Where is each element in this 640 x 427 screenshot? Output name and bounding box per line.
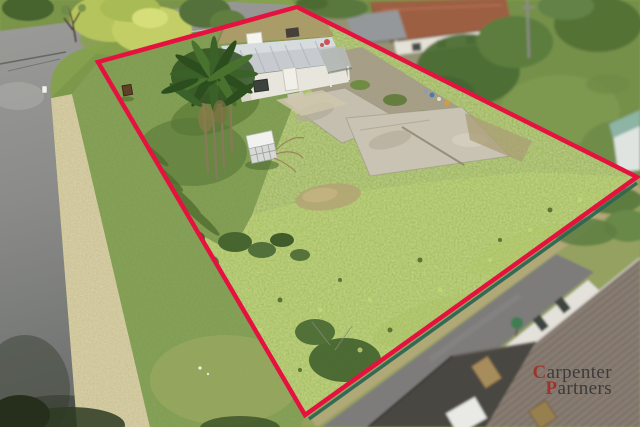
aerial-photo: Carpenter Partners (0, 0, 640, 427)
roadside-post (42, 86, 47, 93)
property-photo (0, 0, 640, 427)
red-shrub (324, 39, 330, 45)
barrel (122, 84, 133, 95)
sapling (511, 317, 523, 329)
ibc-crate (246, 131, 277, 164)
white-flowers (198, 366, 201, 369)
roof-vent (285, 27, 299, 38)
house-window (253, 79, 268, 92)
house-door (283, 67, 299, 91)
